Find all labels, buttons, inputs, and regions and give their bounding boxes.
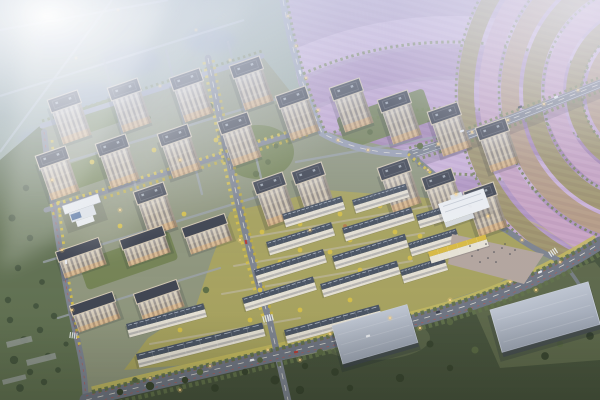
- aerial-rendering-image: [0, 0, 600, 400]
- atmosphere-haze: [0, 0, 600, 400]
- masterplan-scene: [0, 0, 600, 400]
